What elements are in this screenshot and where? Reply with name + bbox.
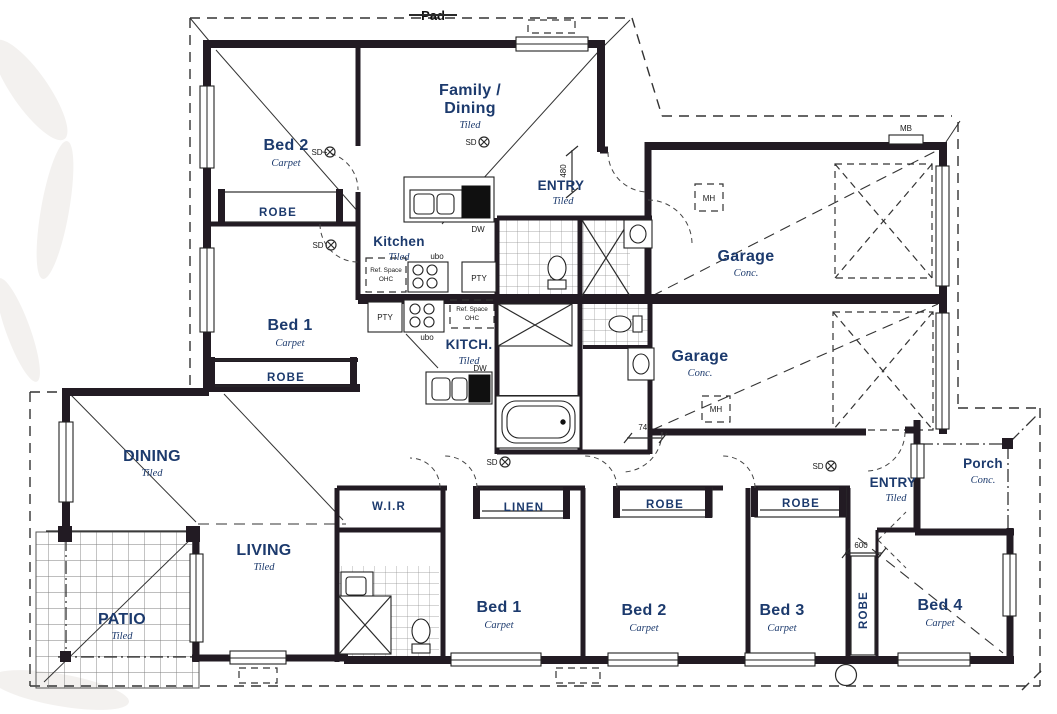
room-bed1-lower-finish: Carpet: [484, 620, 514, 631]
robe-bed4-label: ROBE: [858, 591, 870, 629]
sd-family-label: SD: [465, 138, 476, 147]
fridge-upper-line2: OHC: [379, 276, 394, 283]
pty-lower-label: PTY: [377, 313, 393, 322]
floor-plan-page: Pad Bed 2 Carpet Family / Dining Tiled E…: [0, 0, 1057, 714]
sd-bed2-label: SD: [311, 148, 322, 157]
room-porch-finish: Conc.: [971, 475, 996, 486]
robe-bed1-upper-label: ROBE: [267, 372, 305, 384]
room-kitchen-upper: Kitchen: [373, 234, 425, 249]
room-entry-upper-finish: Tiled: [552, 196, 574, 207]
room-bed2-upper: Bed 2: [263, 137, 308, 154]
fridge-upper-line1: Ref. Space: [370, 267, 402, 274]
room-garage-lower-finish: Conc.: [688, 368, 713, 379]
linen-label: LINEN: [504, 502, 545, 514]
room-garage-lower: Garage: [672, 348, 729, 365]
sd-hall-label: SD: [486, 458, 497, 467]
sd-entry-label: SD: [812, 462, 823, 471]
pty-upper-label: PTY: [471, 274, 487, 283]
room-kitchen-lower: KITCH.: [446, 337, 493, 352]
room-living-finish: Tiled: [253, 562, 275, 573]
interior-walls: [207, 44, 915, 662]
room-bed2-lower: Bed 2: [621, 602, 666, 619]
windows: [59, 20, 1016, 686]
room-entry-upper: ENTRY: [538, 178, 585, 193]
dw-upper-label: DW: [471, 225, 485, 234]
room-garage-upper-finish: Conc.: [734, 268, 759, 279]
ubo-upper-label: ubo: [430, 252, 444, 261]
room-patio-finish: Tiled: [111, 631, 133, 642]
room-dining: DINING: [123, 448, 181, 465]
manhole-1-label: MH: [703, 194, 716, 203]
floor-plan-drawing: Pad Bed 2 Carpet Family / Dining Tiled E…: [0, 0, 1057, 714]
room-kitchen-upper-finish: Tiled: [388, 252, 410, 263]
manhole-2-label: MH: [710, 405, 723, 414]
room-garage-upper: Garage: [718, 248, 775, 265]
room-family-line2: Dining: [444, 100, 496, 117]
porch-outline: [920, 438, 1013, 528]
room-family-finish: Tiled: [459, 120, 481, 131]
room-dining-finish: Tiled: [141, 468, 163, 479]
dim-480: 480: [559, 164, 568, 178]
fridge-lower-line1: Ref. Space: [456, 306, 488, 313]
room-bed2-lower-finish: Carpet: [629, 623, 659, 634]
room-bed1-upper: Bed 1: [267, 317, 312, 334]
room-entry-lower: ENTRY: [870, 475, 917, 490]
dw-lower-label: DW: [473, 364, 487, 373]
robe-bed3-lower-label: ROBE: [782, 498, 820, 510]
patio-area: [36, 526, 200, 688]
room-entry-lower-finish: Tiled: [885, 493, 907, 504]
room-bed1-lower: Bed 1: [476, 599, 521, 616]
room-bed4-finish: Carpet: [925, 618, 955, 629]
meter-box-label: MB: [900, 124, 912, 133]
room-bed4: Bed 4: [917, 597, 962, 614]
bath-lower-fixtures: [496, 304, 654, 448]
robe-bed2-upper-label: ROBE: [259, 207, 297, 219]
room-bed3-lower-finish: Carpet: [767, 623, 797, 634]
ubo-lower-label: ubo: [420, 333, 434, 342]
room-bed1-upper-finish: Carpet: [275, 338, 305, 349]
room-bed3-lower: Bed 3: [759, 602, 804, 619]
room-living: LIVING: [236, 542, 291, 559]
room-patio: PATIO: [98, 611, 146, 628]
wir-label: W.I.R: [372, 501, 406, 513]
robe-bed2-lower-label: ROBE: [646, 499, 684, 511]
room-bed2-upper-finish: Carpet: [271, 158, 301, 169]
room-family-line1: Family /: [439, 82, 501, 99]
room-porch: Porch: [963, 456, 1003, 471]
dim-740: 740: [638, 423, 652, 432]
dim-600: 600: [854, 541, 868, 550]
sd-kitchen-label: SD: [312, 241, 323, 250]
fridge-lower-line2: OHC: [465, 315, 480, 322]
